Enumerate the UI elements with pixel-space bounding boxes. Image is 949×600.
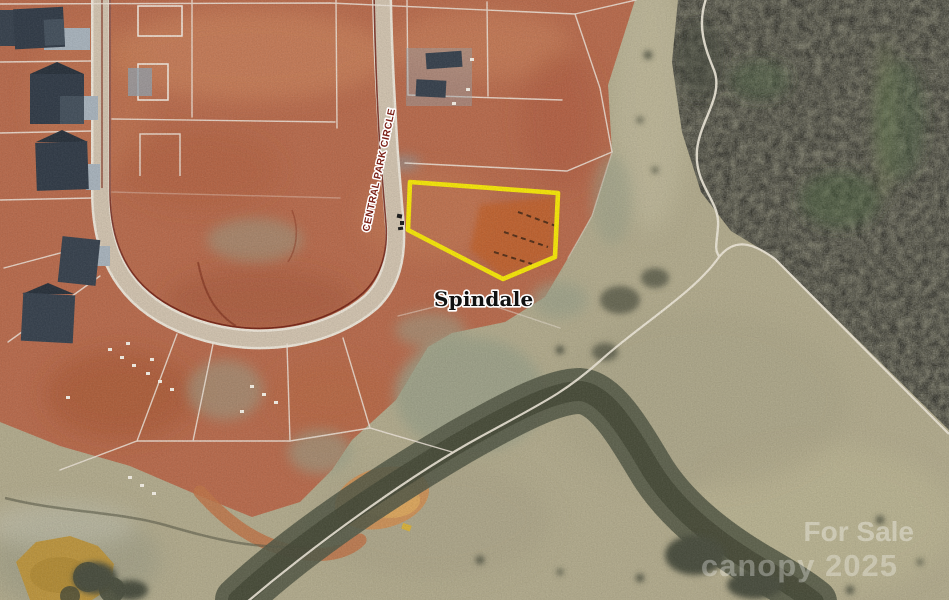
map-viewport: CENTRAL PARK CIRCLE Spindale For Sale ca…: [0, 0, 949, 600]
watermark-for-sale: For Sale: [804, 516, 914, 547]
watermark-brand-year: canopy 2025: [701, 548, 898, 583]
place-label: Spindale: [434, 287, 533, 311]
aerial-map: CENTRAL PARK CIRCLE Spindale For Sale ca…: [0, 0, 949, 600]
